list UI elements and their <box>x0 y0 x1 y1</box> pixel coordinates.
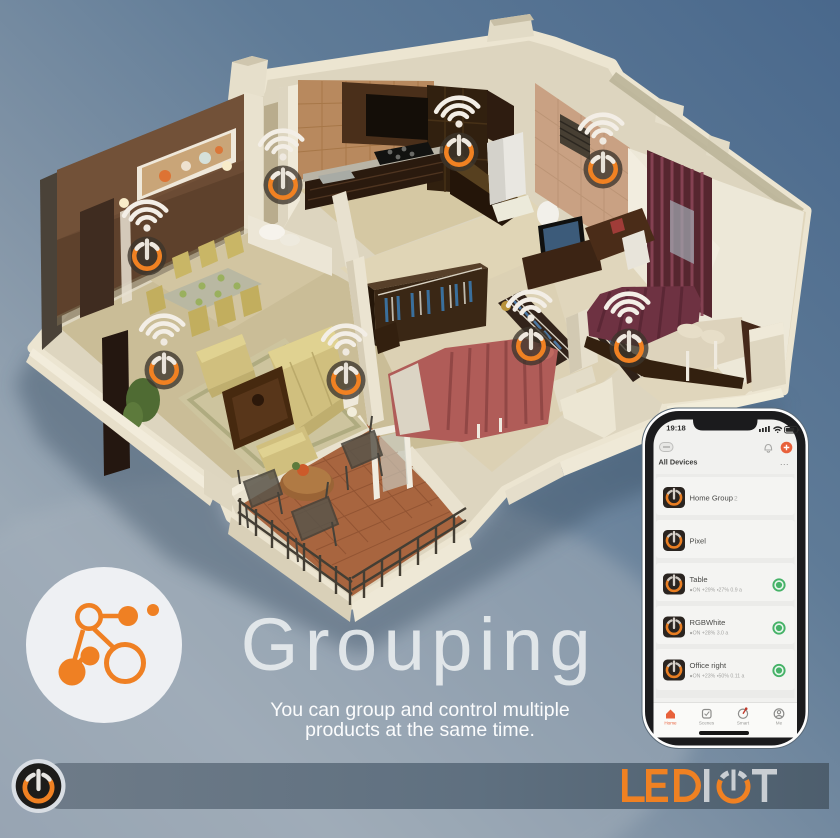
svg-text:19:18: 19:18 <box>666 424 685 433</box>
svg-text:●ON +28% 3.0 a: ●ON +28% 3.0 a <box>690 631 729 637</box>
svg-text:RGBWhite: RGBWhite <box>690 618 726 627</box>
svg-text:You can group and control mult: You can group and control multiple <box>270 699 570 721</box>
svg-text:Grouping: Grouping <box>241 603 597 686</box>
svg-text:●ON +29% ▪27% 0.9 a: ●ON +29% ▪27% 0.9 a <box>690 588 743 594</box>
svg-text:Table: Table <box>690 575 708 584</box>
svg-text:Smart: Smart <box>737 721 750 726</box>
svg-text:Pixel: Pixel <box>690 537 707 546</box>
svg-text:...: ... <box>780 457 789 467</box>
svg-text:products at the same time.: products at the same time. <box>305 719 535 741</box>
svg-text:Office right: Office right <box>690 661 727 670</box>
svg-text:All Devices: All Devices <box>659 458 698 467</box>
svg-text:Scenes: Scenes <box>699 721 715 726</box>
svg-text:Home: Home <box>664 721 677 726</box>
svg-text:●ON +23% ▪50% 0.11 a: ●ON +23% ▪50% 0.11 a <box>690 674 745 680</box>
svg-text:2: 2 <box>734 496 738 503</box>
svg-text:Me: Me <box>776 721 783 726</box>
svg-text:Home Group: Home Group <box>690 494 733 503</box>
